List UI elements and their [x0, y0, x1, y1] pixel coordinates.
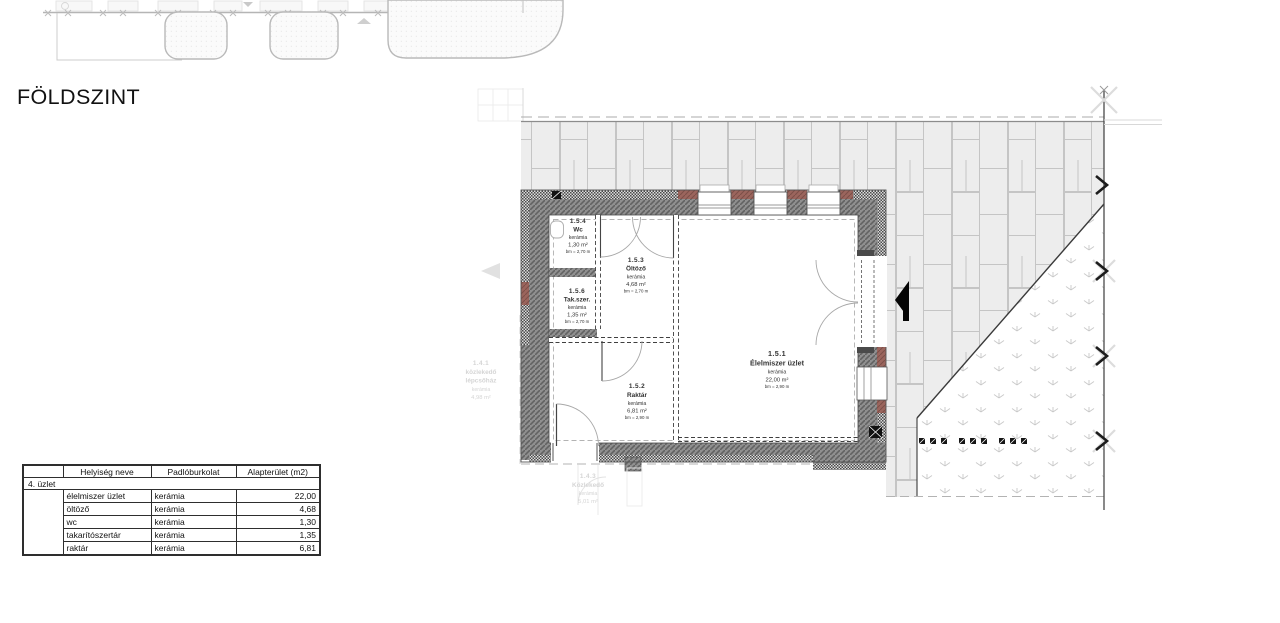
row-stub-cell [23, 490, 63, 556]
cell-area: 1,30 [236, 516, 320, 529]
svg-text:Tak.szer.: Tak.szer. [564, 297, 591, 304]
partition-takszer-bottom [549, 329, 597, 337]
partition-wc-takszer [549, 268, 597, 277]
svg-text:kerámia: kerámia [472, 387, 491, 393]
svg-text:bm = 2,70 m: bm = 2,70 m [566, 249, 591, 254]
svg-text:1,30 m²: 1,30 m² [568, 243, 588, 249]
faded-terrace-2 [270, 12, 338, 59]
svg-text:közlekedő: közlekedő [466, 369, 497, 376]
svg-text:Raktár: Raktár [627, 392, 647, 399]
svg-text:1.4.3: 1.4.3 [580, 473, 596, 480]
cell-floor: kerámia [151, 503, 236, 516]
svg-text:lépcsőház: lépcsőház [466, 378, 497, 385]
cell-room-name: öltöző [63, 503, 151, 516]
cell-room-name: wc [63, 516, 151, 529]
svg-text:1.5.1: 1.5.1 [768, 349, 786, 358]
svg-text:1.5.6: 1.5.6 [569, 288, 585, 295]
table-header-row: Helyiség neve Padlóburkolat Alapterület … [23, 465, 320, 478]
cell-area: 6,81 [236, 542, 320, 556]
svg-text:6,81 m²: 6,81 m² [627, 409, 647, 415]
svg-text:bm = 2,70 m: bm = 2,70 m [565, 319, 590, 324]
svg-text:kerámia: kerámia [579, 491, 598, 497]
washbasin [551, 221, 564, 238]
svg-text:bm = 2,90 m: bm = 2,90 m [765, 384, 790, 389]
svg-text:kerámia: kerámia [627, 275, 646, 281]
svg-text:1.4.1: 1.4.1 [473, 360, 489, 367]
svg-text:22,00 m²: 22,00 m² [766, 378, 789, 384]
window-top-2 [754, 185, 787, 215]
insulation-bottom-right [813, 463, 886, 470]
table-row: élelmiszer üzlet kerámia 22,00 [23, 490, 320, 503]
svg-text:kerámia: kerámia [628, 401, 647, 407]
group-label: 4. üzlet [23, 478, 320, 490]
table-row: raktár kerámia 6,81 [23, 542, 320, 556]
cell-area: 1,35 [236, 529, 320, 542]
faded-terrace-3 [388, 0, 563, 58]
window-top-1 [698, 185, 731, 215]
page-title: FÖLDSZINT [17, 85, 140, 110]
table-group-row: 4. üzlet [23, 478, 320, 490]
cell-floor: kerámia [151, 516, 236, 529]
header-floor-covering: Padlóburkolat [151, 465, 236, 478]
svg-text:1.5.4: 1.5.4 [570, 218, 586, 225]
faded-boundary-l [57, 13, 182, 60]
header-room-name: Helyiség neve [63, 465, 151, 478]
faded-entrance-arrow [481, 263, 500, 279]
cell-room-name: élelmiszer üzlet [63, 490, 151, 503]
room-schedule-table: Helyiség neve Padlóburkolat Alapterület … [22, 464, 321, 556]
extension-lines [1104, 120, 1162, 125]
svg-text:4,98 m²: 4,98 m² [471, 395, 491, 401]
svg-text:kerámia: kerámia [569, 235, 588, 241]
svg-text:Wc: Wc [573, 227, 583, 234]
hedge-marker-row [919, 438, 1027, 444]
svg-text:5,01 m²: 5,01 m² [578, 499, 598, 505]
faded-paving-corner [478, 89, 523, 121]
cell-floor: kerámia [151, 529, 236, 542]
svg-text:1.5.2: 1.5.2 [629, 383, 645, 390]
svg-text:1,35 m²: 1,35 m² [567, 313, 587, 319]
cell-area: 22,00 [236, 490, 320, 503]
svg-text:4,68 m²: 4,68 m² [626, 282, 646, 288]
cell-room-name: takarítószertár [63, 529, 151, 542]
faded-arrow-up [357, 18, 371, 24]
svg-text:Élelmiszer üzlet: Élelmiszer üzlet [750, 359, 805, 368]
svg-text:1.5.3: 1.5.3 [628, 257, 644, 264]
window-right [857, 367, 887, 400]
svg-text:bm = 2,70 m: bm = 2,70 m [624, 289, 649, 294]
table-row: öltöző kerámia 4,68 [23, 503, 320, 516]
svg-text:Közlekedő: Közlekedő [572, 482, 604, 489]
faded-arrow-down [243, 2, 253, 7]
table-row: takarítószertár kerámia 1,35 [23, 529, 320, 542]
table-row: wc kerámia 1,30 [23, 516, 320, 529]
faded-room-label-1-4-1: 1.4.1 közlekedő lépcsőház kerámia 4,98 m… [466, 360, 497, 401]
drawing-sheet: 1.5.1 Élelmiszer üzlet kerámia 22,00 m² … [0, 0, 1280, 623]
electrical-box-symbol [869, 426, 882, 438]
cell-floor: kerámia [151, 490, 236, 503]
svg-text:kerámia: kerámia [568, 305, 587, 311]
cell-area: 4,68 [236, 503, 320, 516]
header-area: Alapterület (m2) [236, 465, 320, 478]
window-top-3 [807, 185, 840, 215]
faded-terrace-1 [165, 12, 227, 59]
faded-upper-drawing-fragment [43, 0, 563, 60]
cell-room-name: raktár [63, 542, 151, 556]
header-empty [23, 465, 63, 478]
svg-text:bm = 2,90 m: bm = 2,90 m [625, 415, 650, 420]
svg-text:kerámia: kerámia [768, 370, 787, 376]
column-marker-topleft [552, 191, 561, 199]
insulation-left [521, 199, 529, 345]
svg-text:Öltöző: Öltöző [626, 264, 646, 273]
cell-floor: kerámia [151, 542, 236, 556]
